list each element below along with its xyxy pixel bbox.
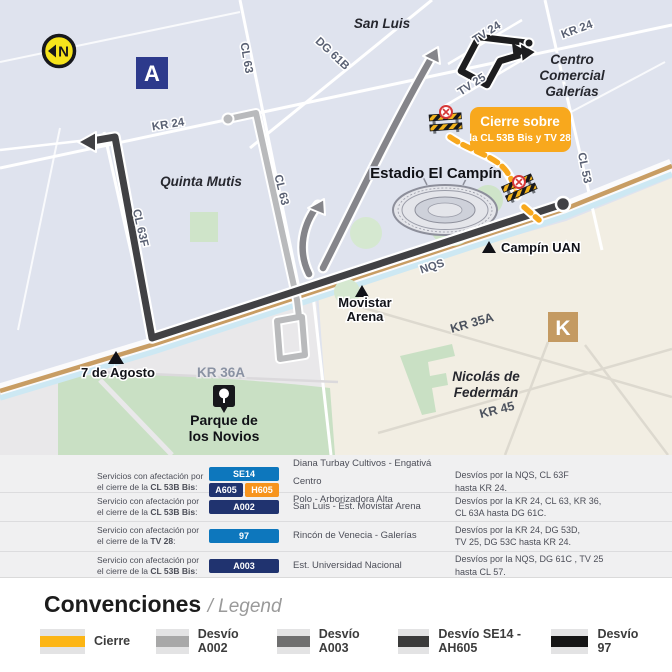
zone-a-badge: A (136, 57, 168, 89)
route-names: Est. Universidad Nacional (293, 557, 455, 575)
legend-items: Cierre Desvío A002 Desvío A003 Desvío SE… (40, 627, 672, 655)
service-description: Servicios con afectación por el cierre d… (97, 471, 209, 493)
closure-box-line2: la CL 53B Bis y TV 28 (469, 133, 571, 144)
detour-description: Desvíos por la KR 24, DG 53D, TV 25, DG … (455, 524, 672, 549)
legend-section: Convenciones / Legend Cierre Desvío A002… (0, 577, 672, 672)
desvio-a002-swatch-icon (156, 629, 189, 654)
table-row: Servicio con afectación por el cierre de… (0, 521, 672, 550)
label-parque-2: los Novios (189, 428, 260, 444)
route-badge-a003: A003 (209, 559, 279, 573)
affected-services-table: Servicios con afectación por el cierre d… (0, 455, 672, 577)
closure-box-line1: Cierre sobre (480, 114, 560, 129)
legend-item-desvio-se14-ah605: Desvío SE14 - AH605 (398, 627, 525, 655)
route-badges: SE14 A605 H605 (209, 467, 281, 497)
route-names: Rincón de Venecia - Galerías (293, 527, 455, 545)
desvio-se14-swatch-icon (398, 629, 429, 654)
detour-description: Desvíos por la NQS, CL 63F hasta KR 24. (455, 469, 672, 494)
route-names: San Luis - Est. Movistar Arena (293, 498, 455, 516)
north-compass-icon: N (44, 36, 75, 67)
detour-description: Desvíos por la KR 24, CL 63, KR 36, CL 6… (455, 495, 672, 520)
label-galerias-3: Galerías (545, 84, 599, 99)
detour-description: Desvíos por la NQS, DG 61C , TV 25 hasta… (455, 553, 672, 578)
label-7-de-agosto: 7 de Agosto (81, 365, 155, 380)
cierre-swatch-icon (40, 629, 85, 654)
legend-item-label: Desvío A003 (319, 627, 372, 655)
route-badge-a002: A002 (209, 500, 279, 514)
zone-k-label: K (555, 317, 570, 340)
detour-map-infographic: A K N Cierre sobre la CL 53B Bis y TV 28… (0, 0, 672, 672)
legend-item-cierre: Cierre (40, 629, 130, 654)
label-movistar-2: Arena (347, 309, 385, 324)
label-movistar-1: Movistar (338, 295, 391, 310)
route-badge-se14: SE14 (209, 467, 279, 481)
desvio-97-swatch-icon (551, 629, 588, 654)
legend-item-label: Cierre (94, 634, 130, 648)
label-san-luis: San Luis (354, 16, 411, 31)
desvio-a003-swatch-icon (277, 629, 310, 654)
label-kr36a: KR 36A (197, 365, 245, 380)
green-patch (190, 212, 218, 242)
legend-subtitle: / Legend (208, 596, 282, 617)
route-a002-start-dot (223, 114, 234, 125)
label-federman-2: Federmán (454, 385, 519, 400)
label-quinta-mutis: Quinta Mutis (160, 174, 242, 189)
zone-a-label: A (144, 61, 160, 86)
service-description: Servicio con afectación por el cierre de… (97, 525, 209, 547)
label-galerias-1: Centro (550, 52, 594, 67)
label-galerias-2: Comercial (539, 68, 605, 83)
route-badge-h605: H605 (245, 483, 279, 497)
no-entry-icon (513, 176, 525, 188)
table-row: Servicios con afectación por el cierre d… (0, 455, 672, 492)
closure-info-box: Cierre sobre la CL 53B Bis y TV 28 (469, 107, 571, 152)
legend-item-desvio-97: Desvío 97 (551, 627, 646, 655)
route-badge-97: 97 (209, 529, 279, 543)
route-97-start-dot (525, 39, 534, 48)
route-badges: A002 (209, 500, 281, 514)
route-badges: 97 (209, 529, 281, 543)
label-estadio: Estadio El Campín (370, 165, 502, 182)
service-description: Servicio con afectación por el cierre de… (97, 555, 209, 577)
legend-item-desvio-a003: Desvío A003 (277, 627, 372, 655)
table-row: Servicio con afectación por el cierre de… (0, 551, 672, 580)
label-parque-1: Parque de (190, 412, 258, 428)
label-federman-1: Nicolás de (452, 369, 520, 384)
legend-item-label: Desvío 97 (597, 627, 646, 655)
route-badges: A003 (209, 559, 281, 573)
detour-map: A K N Cierre sobre la CL 53B Bis y TV 28… (0, 0, 672, 455)
service-description: Servicio con afectación por el cierre de… (97, 496, 209, 518)
route-se14-start-dot (556, 197, 570, 211)
route-badge-a605: A605 (209, 483, 243, 497)
legend-item-label: Desvío A002 (198, 627, 251, 655)
label-campin-uan: Campín UAN (501, 240, 580, 255)
legend-item-label: Desvío SE14 - AH605 (438, 627, 525, 655)
no-entry-icon (440, 106, 452, 118)
legend-item-desvio-a002: Desvío A002 (156, 627, 251, 655)
legend-title: Convenciones / Legend (44, 591, 672, 618)
zone-k-badge: K (548, 312, 578, 342)
north-label: N (58, 44, 69, 61)
